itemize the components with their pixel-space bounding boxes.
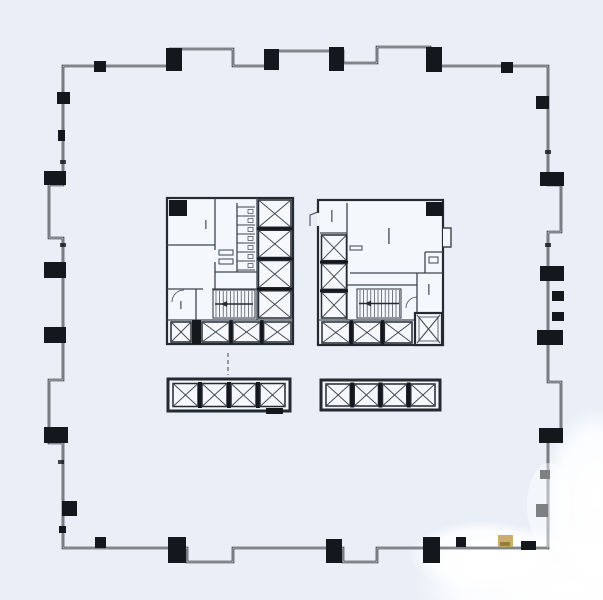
illegible-label-mark xyxy=(388,228,390,244)
perimeter-column xyxy=(329,47,344,71)
perimeter-column xyxy=(59,526,66,533)
perimeter-column xyxy=(166,48,182,71)
perimeter-column xyxy=(501,62,513,73)
wall-tick xyxy=(545,243,551,247)
perimeter-column xyxy=(540,266,564,281)
wall-tick xyxy=(58,460,64,464)
left-bank-cells xyxy=(173,382,285,408)
perimeter-column xyxy=(57,92,70,104)
perimeter-column xyxy=(423,537,440,563)
perimeter-column xyxy=(95,537,106,548)
core-column-block xyxy=(426,202,443,216)
core-column-block xyxy=(169,200,187,216)
perimeter-column xyxy=(44,327,66,343)
shaft-post xyxy=(192,320,201,344)
perimeter-column xyxy=(264,49,279,70)
illegible-label-mark xyxy=(428,284,430,295)
white-fade-over-wall xyxy=(527,463,571,547)
wall-tick xyxy=(545,150,551,154)
floor-plan-scan xyxy=(0,0,603,600)
right-bank-cells xyxy=(326,383,435,408)
right-core-shaft-cells xyxy=(320,235,348,318)
right-core-bottom-cells xyxy=(322,321,412,345)
perimeter-column xyxy=(58,130,65,141)
perimeter-column xyxy=(326,539,342,563)
right-core-stairs xyxy=(357,289,401,318)
perimeter-column xyxy=(94,61,106,72)
wall-tick xyxy=(60,243,66,247)
floor-plan-svg xyxy=(0,0,603,600)
perimeter-column xyxy=(62,501,77,516)
perimeter-column xyxy=(44,427,68,443)
perimeter-column xyxy=(521,541,536,550)
perimeter-column xyxy=(540,172,564,186)
perimeter-column xyxy=(44,171,66,185)
illegible-label-mark xyxy=(180,301,182,309)
illegible-label-mark xyxy=(331,210,333,222)
wall-notch xyxy=(443,228,451,247)
perimeter-column xyxy=(536,96,549,109)
wall-tick xyxy=(60,160,66,164)
perimeter-column xyxy=(552,312,564,321)
perimeter-column xyxy=(426,47,442,72)
tan-artifact-shadow xyxy=(500,542,510,546)
perimeter-column xyxy=(537,330,563,345)
perimeter-column xyxy=(539,428,563,443)
left-core xyxy=(167,198,293,344)
left-core-stairs xyxy=(213,290,255,318)
illegible-label-mark xyxy=(205,220,207,229)
service-elevator xyxy=(415,313,442,345)
left-bank-tab xyxy=(266,408,283,414)
perimeter-column xyxy=(168,537,186,563)
scan-background xyxy=(0,0,603,600)
right-core xyxy=(310,200,451,345)
left-core-bottom-cells xyxy=(202,321,291,344)
left-core-shaft-cells xyxy=(257,200,293,318)
perimeter-column xyxy=(44,262,66,278)
perimeter-column xyxy=(456,537,466,547)
perimeter-column xyxy=(552,291,564,301)
